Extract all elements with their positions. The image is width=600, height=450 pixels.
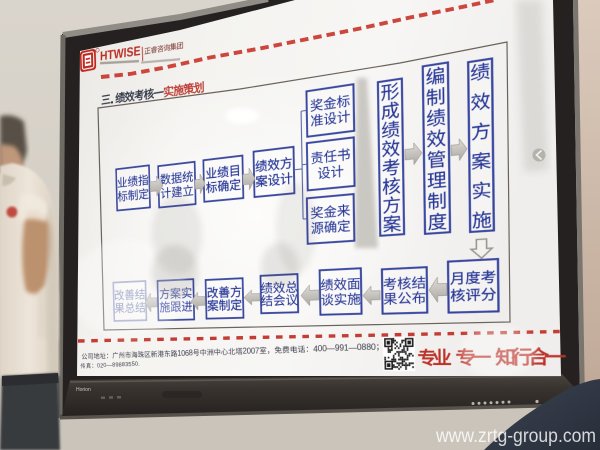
- svg-text:www.zrtg-group.com: www.zrtg-group.com: [435, 426, 596, 447]
